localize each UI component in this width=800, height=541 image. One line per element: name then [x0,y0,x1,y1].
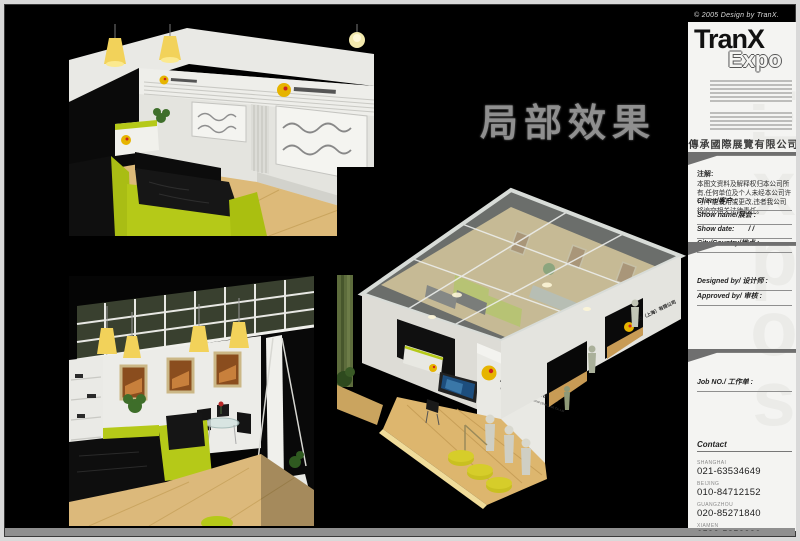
field-job-no-line [697,391,792,392]
field-job-no: Job NO./ 工作单 : [697,371,792,392]
copyright-line: © 2005 Design by TranX. [694,12,779,19]
contact-phone: 010-84712152 [697,487,792,498]
reception-counter [115,120,159,156]
contact-entry: SHANGHAI 021-63534649 [697,460,792,477]
booth-overview-illustration: 触动（上海）有限公司 China View Textile Internatio… [337,167,689,529]
lounge-wall-illustration [69,24,374,236]
presentation-board: 局部效果 [0,0,800,541]
brand-line2: Expo [728,49,782,71]
section-divider [688,349,799,362]
field-approved-by-label: Approved by/ 审核 : [697,293,762,300]
contact-phone: 021-63534649 [697,466,792,477]
page-title: 局部效果 [480,92,656,147]
brand-logo: TranX Expo [694,26,782,71]
meeting-room-illustration [69,276,314,526]
info-sidebar: Expos TranX Expo 傳承國際展覽有限公司 注解: 本图文资料及解释… [688,22,799,531]
contact-entry: BEIJING 010-84712152 [697,481,792,498]
bottom-frame-bar [5,528,795,536]
render-booth-overview: 触动（上海）有限公司 China View Textile Internatio… [337,167,689,529]
field-designed-by-label: Designed by/ 设计师 : [697,278,768,285]
contact-section: Contact SHANGHAI 021-63534649 BEIJING 01… [697,440,792,531]
field-job-no-label: Job NO./ 工作单 : [697,379,753,386]
company-name: 傳承國際展覽有限公司 [688,136,799,151]
contact-entry: GUANGZHOU 020-85271840 [697,502,792,519]
contact-entry: XIAMEN 0592-5852230 [697,523,792,531]
fine-print-block [710,110,792,132]
render-lounge-wall [69,24,374,236]
curtain [337,275,355,387]
render-meeting-room [69,276,314,526]
note-heading: 注解: [697,169,792,179]
contact-phone: 020-85271840 [697,508,792,519]
field-city-country-line [697,252,792,253]
section-divider [688,152,799,165]
field-approved-by: Approved by/ 审核 : [697,285,792,306]
fine-print-block [710,78,792,104]
contact-heading: Contact [697,440,792,452]
contact-phone: 0592-5852230 [697,529,792,531]
field-approved-by-line [697,305,792,306]
